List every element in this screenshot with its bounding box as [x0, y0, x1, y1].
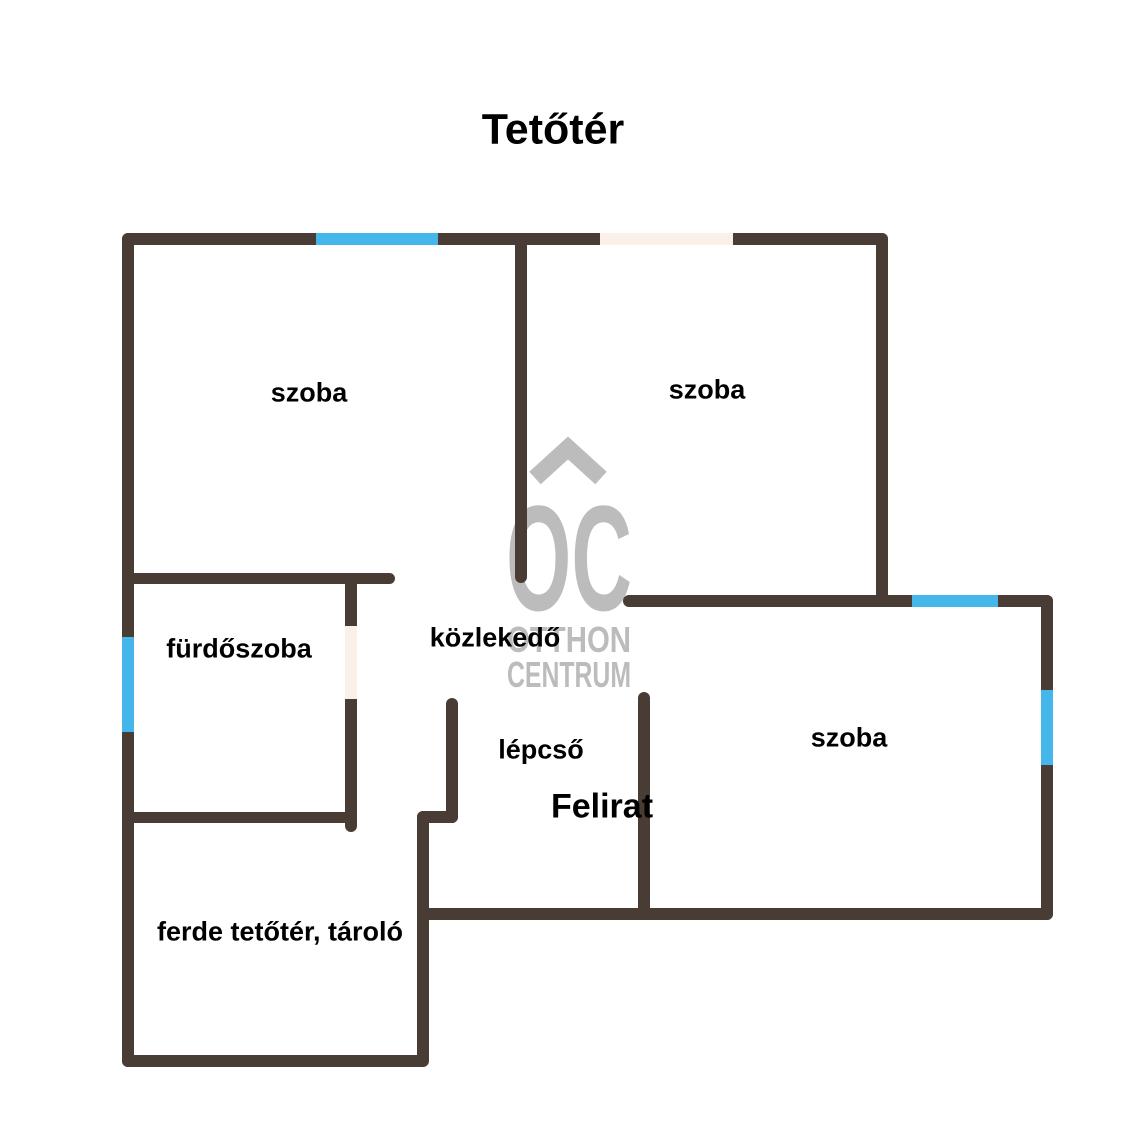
- room-label-furdoszoba: fürdőszoba: [166, 634, 312, 665]
- annotation-felirat: Felirat: [551, 788, 653, 827]
- wall-center-divider: [515, 240, 527, 583]
- otthon-centrum-watermark: OC OTTHON CENTRUM: [470, 432, 680, 702]
- wall-outer-top: [122, 233, 888, 245]
- watermark-line2: CENTRUM: [507, 654, 631, 695]
- room-label-ferde-tetoter: ferde tetőtér, tároló: [157, 917, 403, 948]
- window-bathroom-left: [122, 637, 134, 732]
- room-label-lepcso: lépcső: [498, 735, 584, 766]
- room-label-kozlekedo: közlekedő: [430, 623, 561, 654]
- room-label-szoba-right: szoba: [811, 723, 888, 754]
- wall-stairs-jog: [417, 811, 458, 823]
- room-label-szoba-top-right: szoba: [669, 375, 746, 406]
- wall-storage-right: [417, 811, 429, 1067]
- room-label-szoba-top-left: szoba: [271, 378, 348, 409]
- wall-stairs-left-upper: [446, 698, 458, 823]
- wall-storage-bottom: [122, 1055, 428, 1067]
- window-top-left-room: [316, 233, 438, 245]
- wall-right-room-bottom: [417, 908, 1053, 920]
- floor-plan: Tetőtér OC OTTHON CENTRUM szoba szoba sz…: [0, 0, 1140, 1140]
- window-right-room-top: [912, 595, 998, 607]
- wall-bathroom-right: [345, 573, 357, 832]
- wall-bathroom-bottom: [122, 812, 357, 823]
- door-top-right-room: [600, 233, 733, 245]
- window-right-room-side: [1041, 690, 1053, 765]
- door-bathroom: [345, 626, 357, 699]
- wall-topright-room-right: [876, 233, 888, 607]
- plan-title: Tetőtér: [482, 106, 625, 155]
